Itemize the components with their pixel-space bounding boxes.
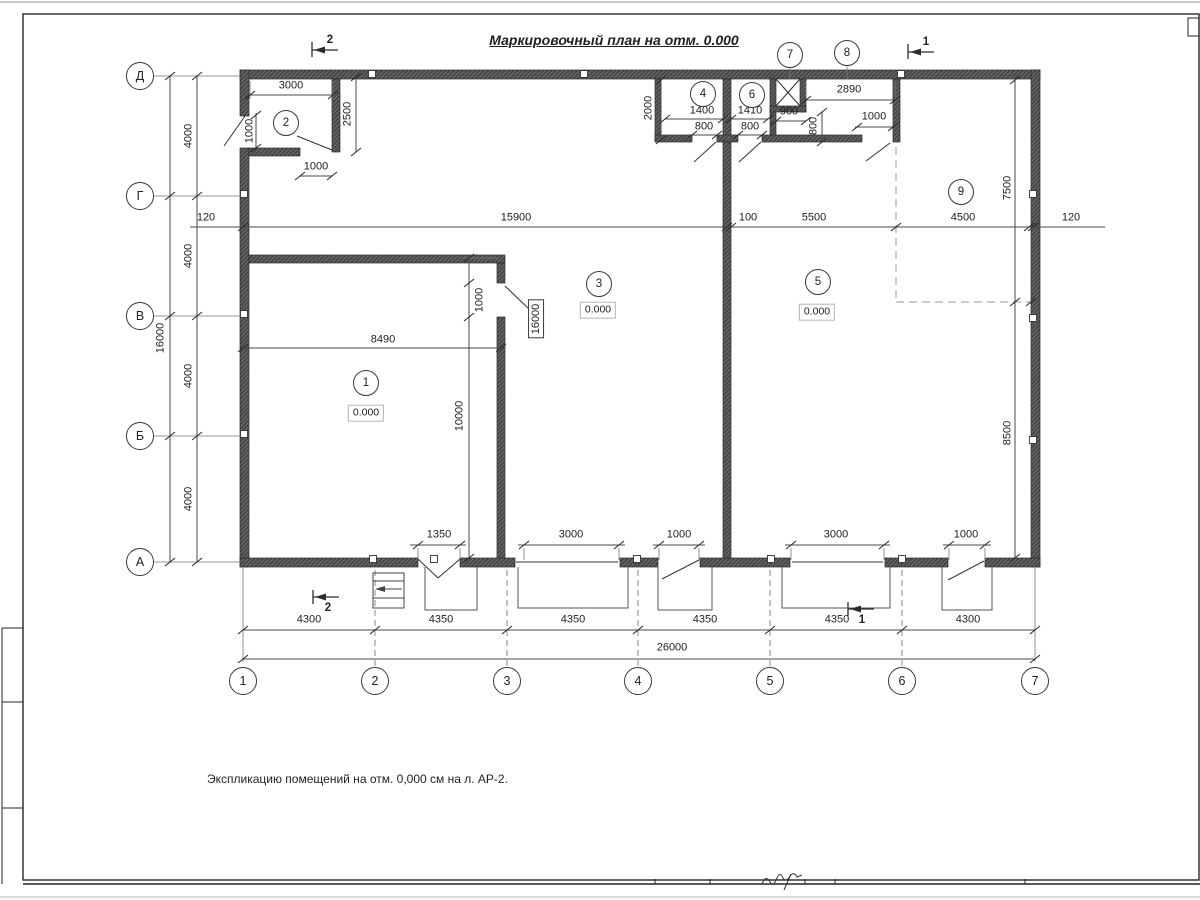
dimension-label: 10000 [455,401,466,432]
dimension-label: 5500 [802,213,826,224]
dimension-label: 26000 [657,643,688,654]
entrance-porches [425,567,992,610]
dimension-label: 800 [809,117,820,135]
explication-note: Экспликацию помещений на отм. 0,000 см н… [207,772,508,786]
dimension-label: 800 [741,122,759,133]
dimension-label: 1000 [245,119,256,143]
dashed-boundaries [375,147,1031,668]
axis-letter-circle: Г [126,182,154,210]
axis-number-circle: 1 [229,667,257,695]
dimension-label: 1000 [475,288,486,312]
dimension-label: 1400 [690,106,714,117]
wall-mark-box: 16000 [528,300,544,339]
axis-number-circle: 5 [756,667,784,695]
dimension-label: 4000 [184,124,195,148]
room-number-circle: 3 [586,271,612,297]
dimension-label: 4350 [825,615,849,626]
axis-letter-circle: А [126,548,154,576]
room-number-circle: 6 [739,82,765,108]
dimension-label: 1000 [304,162,328,173]
dimension-label: 4350 [429,615,453,626]
dimension-label: 1000 [667,530,691,541]
axis-letter-circle: В [126,302,154,330]
dimension-label: 1350 [427,530,451,541]
axis-letter-circle: Д [126,62,154,90]
dimension-label: 2000 [644,96,655,120]
dimension-label: 4500 [951,213,975,224]
axis-number-circle: 3 [493,667,521,695]
dimension-label: 2500 [343,102,354,126]
dimension-label: 3000 [279,81,303,92]
plan-linework [0,0,1200,900]
room-number-circle: 5 [805,269,831,295]
elevation-mark: 0.000 [348,405,384,422]
room-number-circle: 8 [834,40,860,66]
sheet-frame [0,2,1200,897]
signature-scribble [762,874,802,890]
dimension-label: 120 [197,213,215,224]
section-mark-label: 2 [327,34,333,46]
dimension-label: 4300 [956,615,980,626]
dimension-label: 15900 [501,213,532,224]
dimension-ticks [165,72,1040,663]
dimension-label: 900 [780,107,798,118]
axis-number-circle: 4 [624,667,652,695]
elevation-mark: 0.000 [799,304,835,321]
drawing-title: Маркировочный план на отм. 0.000 [489,32,738,48]
dimension-label: 4350 [693,615,717,626]
axis-number-circle: 6 [888,667,916,695]
dimension-label: 4300 [297,615,321,626]
dimension-label: 3000 [824,530,848,541]
dimension-label: 1000 [862,112,886,123]
section-mark-label: 2 [325,602,331,614]
dimension-label: 800 [695,122,713,133]
entrance-stairs [373,573,404,608]
shaft-cross-icon [776,79,800,106]
dimension-label: 2890 [837,85,861,96]
elevation-mark: 0.000 [580,302,616,319]
column-markers [241,71,1037,563]
axis-number-circle: 2 [361,667,389,695]
walls [240,70,1040,567]
dimension-label: 4000 [184,364,195,388]
room-number-circle: 1 [353,370,379,396]
room-number-circle: 4 [690,81,716,107]
dimension-label: 8500 [1003,421,1014,445]
section-mark-label: 1 [859,614,865,626]
dimension-label: 100 [739,213,757,224]
dimension-label: 4000 [184,244,195,268]
room-number-circle: 9 [948,179,974,205]
axis-number-circle: 7 [1021,667,1049,695]
dimension-label: 16000 [156,323,167,354]
room-number-circle: 7 [777,42,803,68]
axis-letter-circle: Б [126,422,154,450]
dimension-label: 3000 [559,530,583,541]
dimension-label: 8490 [371,335,395,346]
dimension-label: 4350 [561,615,585,626]
dimension-label: 7500 [1003,176,1014,200]
dimension-label: 1000 [954,530,978,541]
section-mark-label: 1 [923,36,929,48]
floor-plan-drawing: Маркировочный план на отм. 0.000 Эксплик… [0,0,1200,900]
dimension-label: 4000 [184,487,195,511]
room-number-circle: 2 [273,110,299,136]
dimension-label: 120 [1062,213,1080,224]
